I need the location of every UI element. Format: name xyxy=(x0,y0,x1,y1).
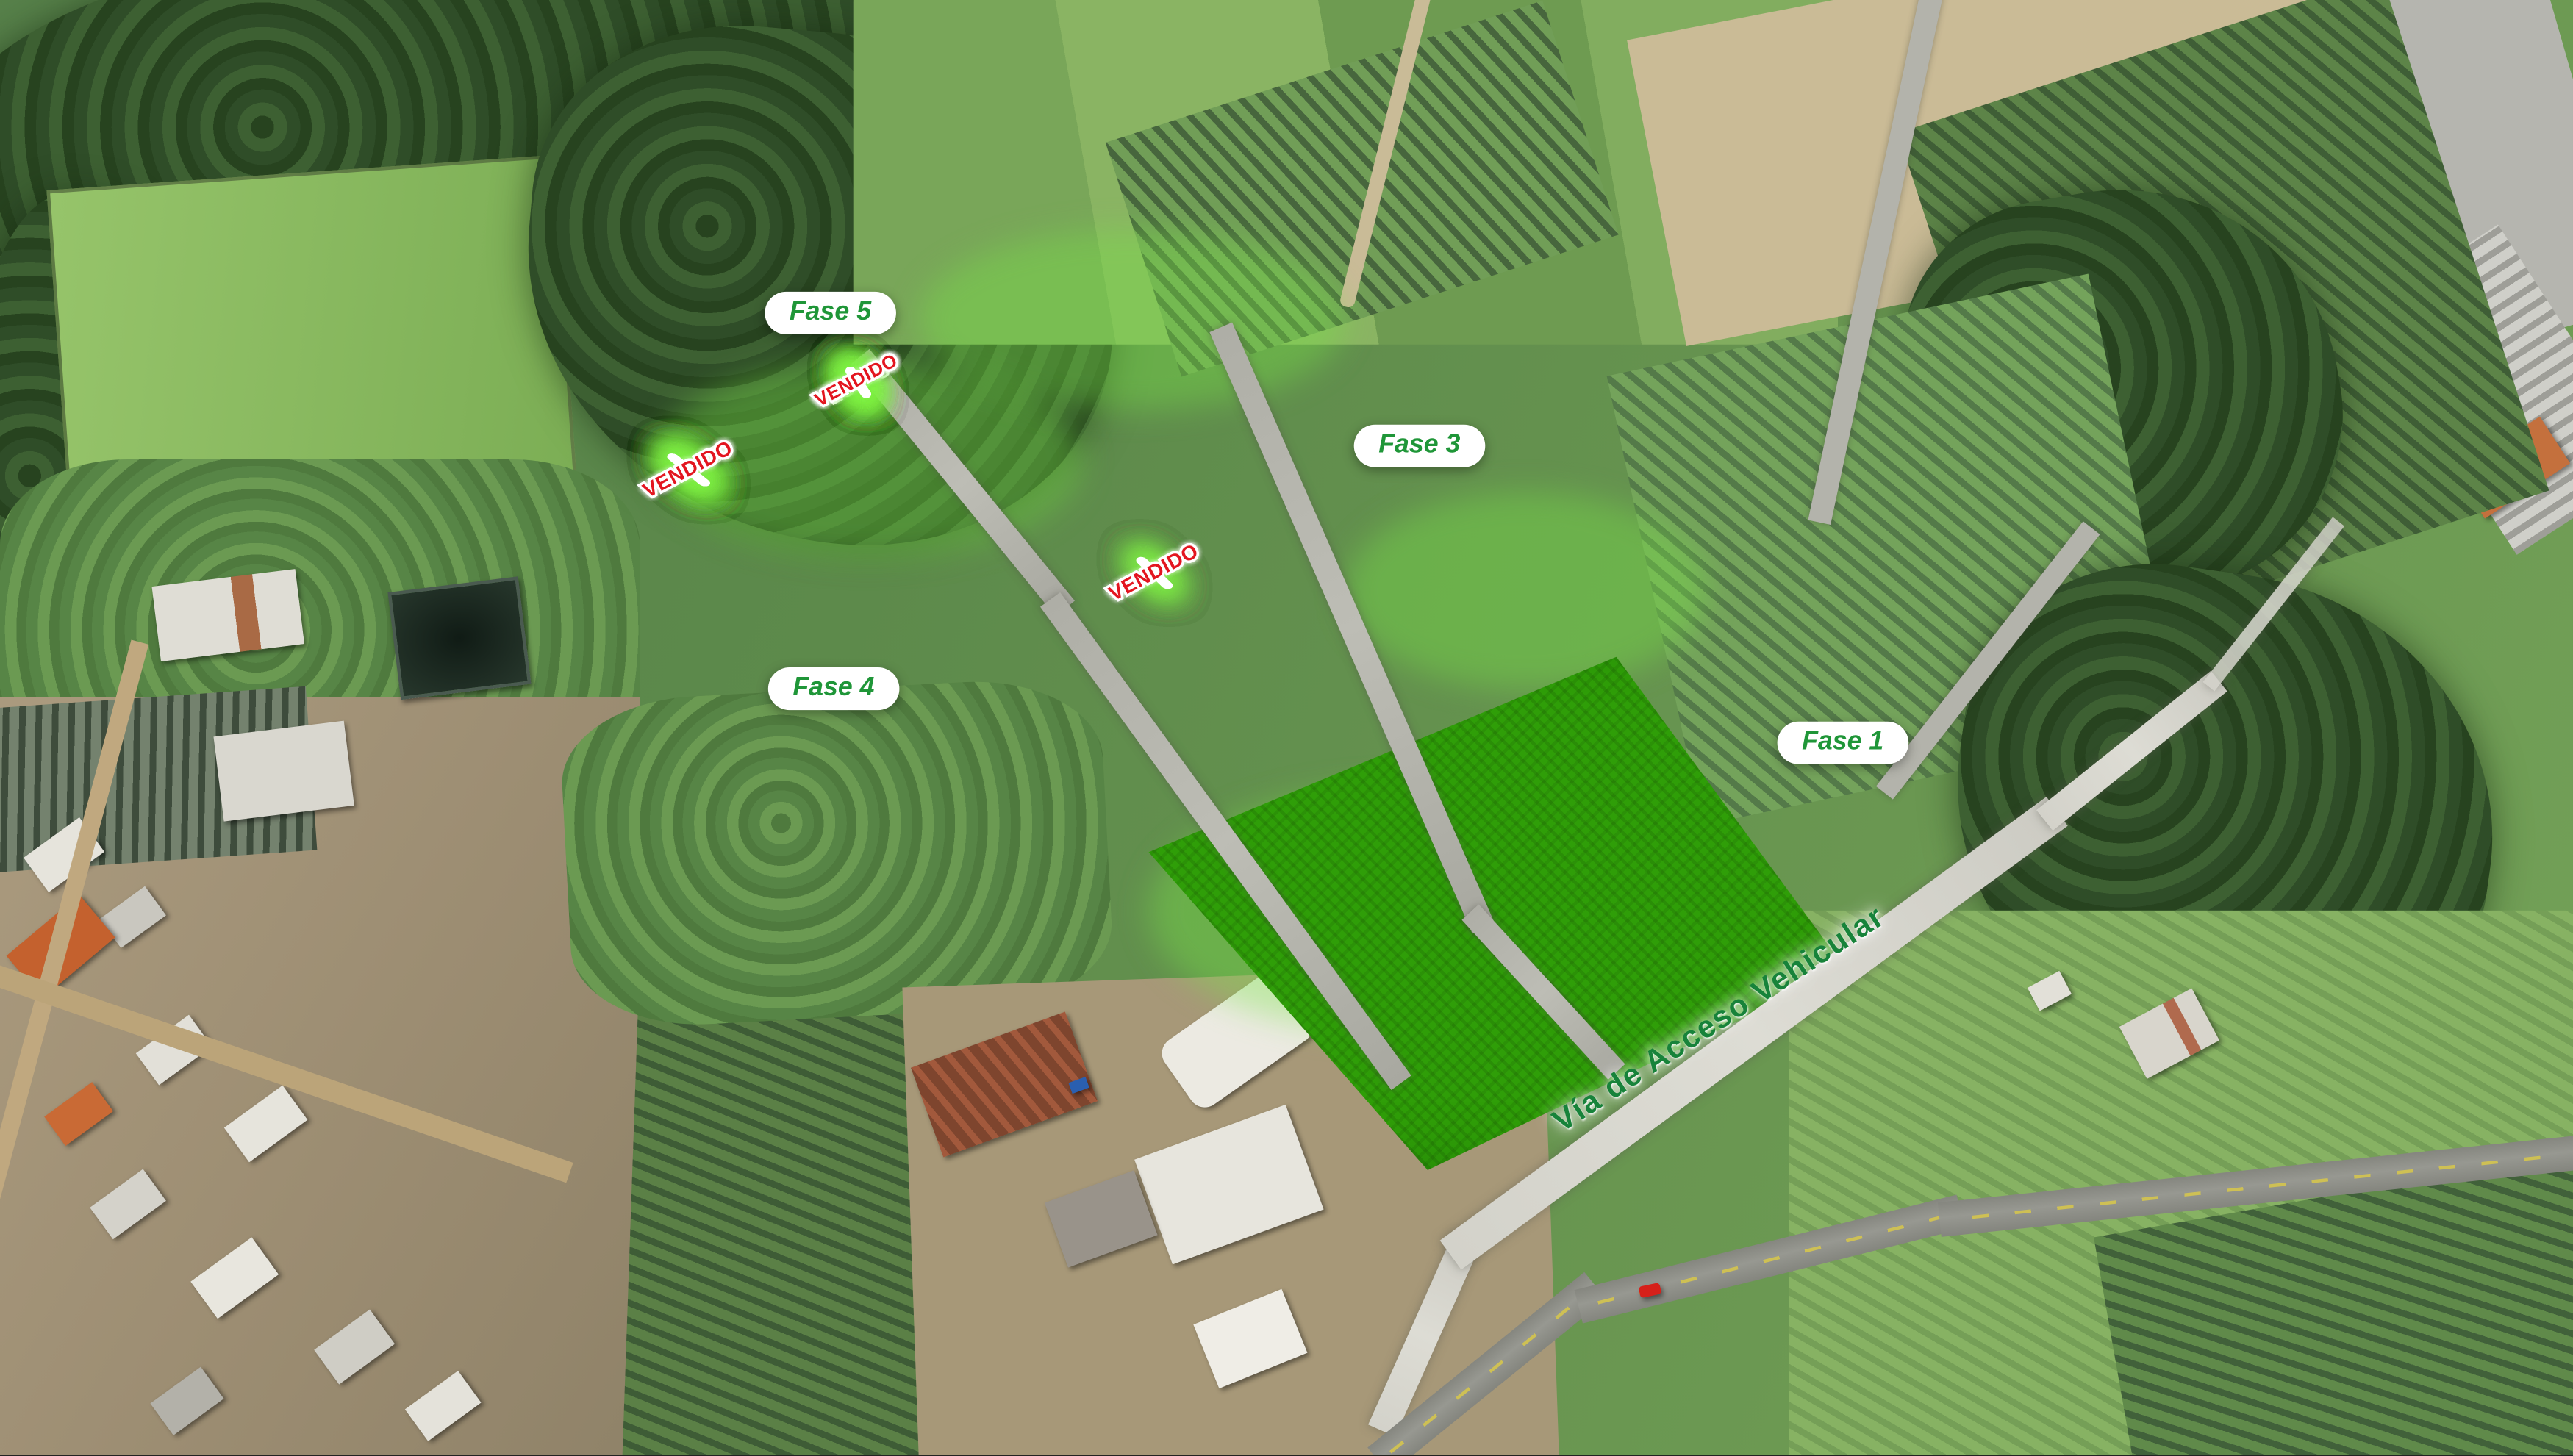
phase-pill-fase-1: Fase 1 xyxy=(1778,722,1908,765)
glow-mist xyxy=(1345,492,1706,689)
scrub-field xyxy=(558,675,1116,1031)
glow-mist xyxy=(919,229,1345,410)
aerial-photo-background xyxy=(0,0,2573,1455)
real-estate-aerial-lot-map: VENDIDOLote 5VENDIDOLote 8Lote 7VENDIDOV… xyxy=(0,0,2573,1455)
phase-pill-fase-5: Fase 5 xyxy=(765,292,895,335)
phase-pill-fase-3: Fase 3 xyxy=(1354,425,1485,468)
phase-pill-fase-4: Fase 4 xyxy=(768,667,899,711)
water-pond-tarp xyxy=(387,576,531,700)
farm-building xyxy=(213,721,354,822)
